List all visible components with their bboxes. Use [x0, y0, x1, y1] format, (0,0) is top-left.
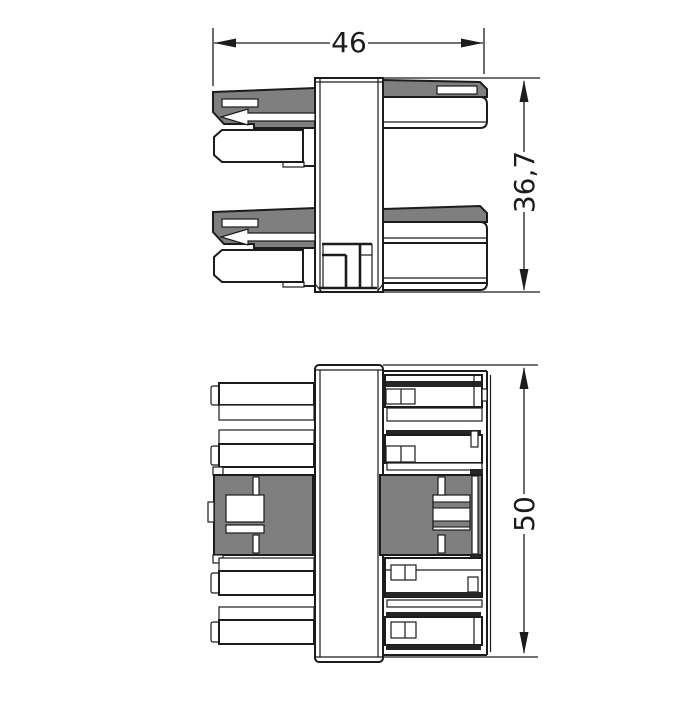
arrowhead-right	[461, 39, 483, 48]
left-prong-4	[211, 607, 314, 644]
left-prong-3	[211, 555, 314, 595]
center-band-left	[208, 475, 313, 555]
left-prong-1	[211, 383, 314, 420]
latch-slot	[222, 219, 258, 227]
mount-foot	[213, 467, 223, 475]
dim-label-width: 46	[331, 26, 367, 59]
right-contact-4	[385, 612, 482, 650]
arrowhead-up	[520, 80, 529, 102]
band-right-cap	[472, 476, 478, 554]
connector-body-top-view	[315, 78, 383, 292]
bottom-view: 50	[208, 365, 541, 662]
latch-arm-row1	[213, 88, 315, 128]
top-view: 46	[213, 26, 541, 292]
latch-slot	[222, 99, 258, 107]
contact-strip	[386, 645, 481, 650]
technical-drawing-canvas: 46	[0, 0, 697, 703]
technical-drawing-page: 46	[0, 0, 697, 703]
band-window	[226, 495, 264, 522]
contact-pin-row2	[214, 248, 315, 287]
band-left-tab	[208, 502, 214, 522]
arrowhead-down	[520, 632, 529, 654]
contact-pin-row1	[214, 128, 315, 167]
right-contact-1	[385, 375, 487, 421]
contact-strip	[386, 592, 481, 597]
contact-strip	[386, 381, 481, 387]
dim-label-height: 50	[508, 496, 541, 532]
arrowhead-down	[520, 269, 529, 291]
right-contact-2	[385, 430, 482, 470]
right-contact-3	[385, 558, 482, 607]
housing-slot	[437, 86, 477, 94]
arrowhead-up	[520, 367, 529, 389]
socket-housing-row2	[383, 206, 487, 290]
center-band-right	[380, 469, 483, 561]
socket-housing-row1	[383, 80, 487, 128]
latch-arm-row2	[213, 208, 315, 248]
connector-body-bottom-view	[315, 365, 383, 662]
arrowhead-left	[214, 39, 236, 48]
dim-label-depth: 36,7	[508, 151, 541, 213]
left-prong-2	[211, 430, 314, 475]
